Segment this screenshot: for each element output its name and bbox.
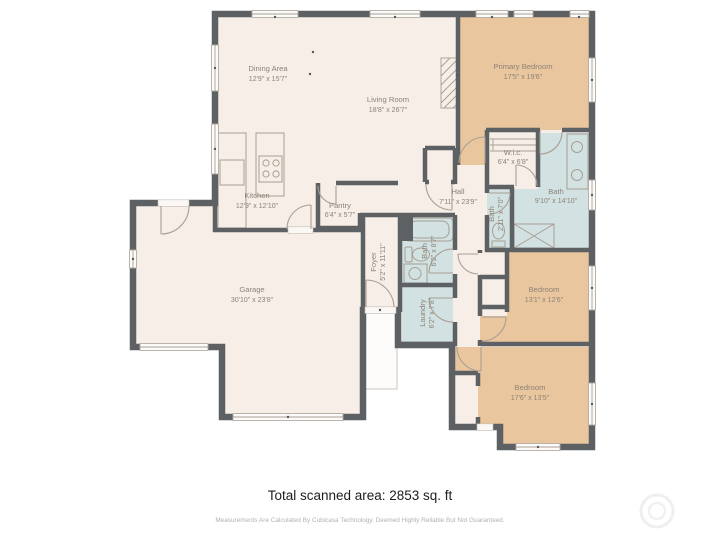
closet-slider: [477, 424, 493, 431]
floor-plan: Dining Area 12'9" x 15'7" Living Room 18…: [0, 0, 720, 540]
label-bath-hall: Bath: [420, 243, 429, 259]
room-laundry: [402, 287, 453, 343]
label-dining: Dining Area: [248, 64, 288, 73]
label-living: Living Room: [367, 95, 409, 104]
disclaimer-text: Measurements Are Calculated By Cubicasa …: [215, 517, 504, 524]
label-bedroom-mid: Bedroom: [529, 285, 560, 294]
dims-living: 18'8" x 26'7": [369, 107, 408, 114]
footer: Total scanned area: 2853 sq. ft Measurem…: [215, 488, 504, 524]
dims-bedroom-mid: 13'1" x 12'6": [525, 297, 564, 304]
total-scanned-area: Total scanned area: 2853 sq. ft: [268, 488, 453, 503]
dims-bath-hall: 6'2" x 8'7": [431, 235, 438, 266]
dims-foyer: 5'2" x 11'11": [380, 243, 387, 281]
label-primary-bedroom: Primary Bedroom: [493, 62, 552, 71]
label-pantry: Pantry: [329, 201, 351, 210]
label-garage: Garage: [239, 285, 264, 294]
dims-garage: 30'10" x 23'8": [231, 297, 274, 304]
watermark-logo: [641, 495, 673, 527]
dims-hall: 7'11" x 23'9": [439, 199, 477, 206]
label-hall: Hall: [451, 187, 464, 196]
porch: [361, 309, 397, 389]
label-bath-small: Bath: [487, 206, 496, 222]
dims-bedroom-bottom: 17'6" x 13'5": [511, 395, 550, 402]
label-wic: W.i.c.: [504, 148, 523, 157]
dims-primary-bedroom: 17'5" x 19'6": [504, 74, 543, 81]
dims-pantry: 6'4" x 5'7": [325, 212, 356, 219]
dims-dining: 12'9" x 15'7": [249, 76, 288, 83]
dims-laundry: 6'2" x 7'8": [429, 297, 436, 328]
label-kitchen: Kitchen: [244, 191, 269, 200]
side-door-opening: [158, 200, 189, 207]
dims-kitchen: 12'9" x 12'10": [236, 203, 279, 210]
dims-bath-main: 9'10" x 14'10": [535, 198, 578, 205]
wall-block: [398, 213, 413, 241]
label-laundry: Laundry: [418, 299, 427, 327]
label-bath-main: Bath: [548, 187, 564, 196]
label-foyer: Foyer: [369, 252, 378, 272]
dims-bath-small: 2'11" x 7'0": [498, 196, 505, 230]
dims-wic: 6'4" x 6'8": [498, 159, 529, 166]
kitchen-garage-opening: [288, 227, 313, 234]
label-bedroom-bottom: Bedroom: [515, 383, 546, 392]
